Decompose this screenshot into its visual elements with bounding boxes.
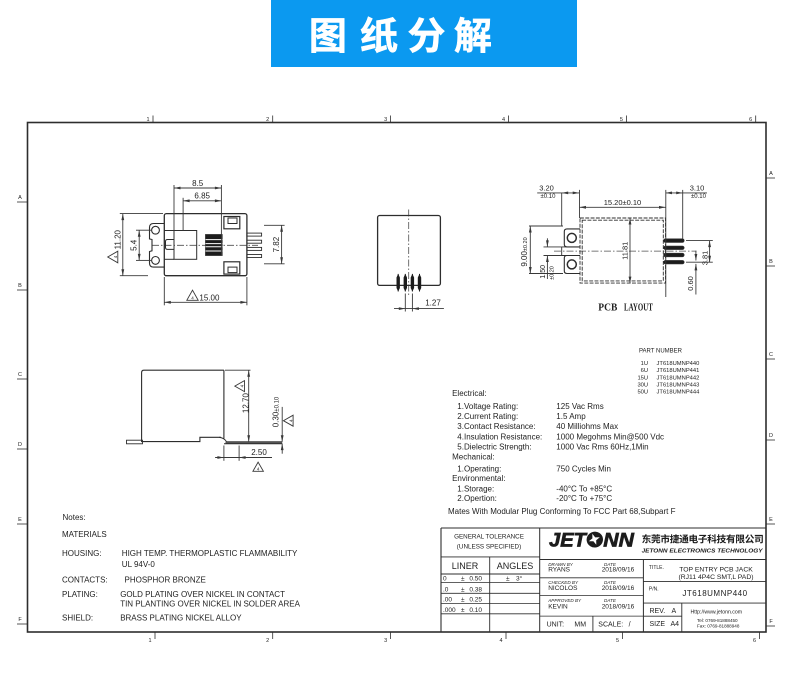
svg-text:.000: .000 bbox=[443, 607, 456, 614]
svg-text:2.Current Rating:: 2.Current Rating: bbox=[457, 412, 518, 421]
svg-text:Environmental:: Environmental: bbox=[452, 474, 505, 483]
svg-text:0.25: 0.25 bbox=[469, 597, 482, 604]
svg-text:C: C bbox=[769, 352, 773, 358]
svg-text:NICOLOS: NICOLOS bbox=[548, 585, 578, 592]
svg-text:3.10: 3.10 bbox=[690, 184, 705, 193]
svg-text:GOLD PLATING OVER NICKEL IN CO: GOLD PLATING OVER NICKEL IN CONTACT bbox=[120, 590, 285, 599]
svg-text:±: ± bbox=[461, 607, 465, 614]
svg-text:TOP ENTRY PCB JACK: TOP ENTRY PCB JACK bbox=[679, 567, 753, 574]
svg-text:5.Dielectric Strength:: 5.Dielectric Strength: bbox=[457, 443, 531, 452]
svg-text:Mechanical:: Mechanical: bbox=[452, 452, 495, 461]
svg-text:9.00±0.20: 9.00±0.20 bbox=[520, 237, 529, 266]
svg-text:±0.10: ±0.10 bbox=[691, 194, 707, 200]
svg-text:3.81: 3.81 bbox=[700, 251, 709, 266]
svg-text:C: C bbox=[18, 372, 22, 378]
svg-text:1: 1 bbox=[148, 638, 151, 644]
svg-text:3.Contact Resistance:: 3.Contact Resistance: bbox=[457, 422, 535, 431]
svg-text:Tel: 0769-81888450: Tel: 0769-81888450 bbox=[697, 618, 738, 623]
svg-text:0.50: 0.50 bbox=[469, 576, 482, 583]
svg-text:4: 4 bbox=[113, 255, 118, 258]
svg-text:1: 1 bbox=[146, 117, 149, 123]
svg-text:HIGH TEMP. THERMOPLASTIC FLAMM: HIGH TEMP. THERMOPLASTIC FLAMMABILITY bbox=[122, 549, 298, 558]
svg-text:-20°C To +75°C: -20°C To +75°C bbox=[556, 494, 612, 503]
svg-text:HOUSING:: HOUSING: bbox=[62, 549, 102, 558]
svg-text:Fax: 0769-81888948: Fax: 0769-81888948 bbox=[697, 624, 740, 629]
svg-text:750 Cycles Min: 750 Cycles Min bbox=[556, 465, 611, 474]
svg-text:8.5: 8.5 bbox=[192, 179, 204, 188]
svg-text:E: E bbox=[18, 517, 22, 523]
svg-text:A: A bbox=[18, 195, 22, 201]
svg-text:UNIT:: UNIT: bbox=[547, 622, 565, 629]
svg-text:PHOSPHOR BRONZE: PHOSPHOR BRONZE bbox=[125, 576, 206, 585]
svg-text:.0: .0 bbox=[443, 586, 449, 593]
svg-text:DATE: DATE bbox=[604, 598, 617, 603]
svg-text:APPROVED BY: APPROVED BY bbox=[547, 598, 582, 603]
svg-text:6: 6 bbox=[749, 117, 752, 123]
svg-text:15.20±0.10: 15.20±0.10 bbox=[604, 198, 641, 207]
svg-text:RYANS: RYANS bbox=[548, 567, 570, 574]
svg-text:2.50: 2.50 bbox=[251, 448, 267, 457]
svg-text:TIN PLANTING OVER NICKEL IN SO: TIN PLANTING OVER NICKEL IN SOLDER AREA bbox=[120, 600, 300, 609]
svg-text:UL 94V-0: UL 94V-0 bbox=[122, 560, 156, 569]
svg-text:2: 2 bbox=[266, 117, 269, 123]
svg-text:11.81: 11.81 bbox=[621, 242, 630, 260]
svg-text:2: 2 bbox=[266, 638, 269, 644]
svg-text:0.60: 0.60 bbox=[686, 276, 695, 291]
svg-text:0.10: 0.10 bbox=[469, 607, 482, 614]
svg-text:CONTACTS:: CONTACTS: bbox=[62, 576, 108, 585]
svg-text:1.27: 1.27 bbox=[425, 299, 441, 308]
svg-text:PLATING:: PLATING: bbox=[62, 590, 98, 599]
svg-text:2.Opertion:: 2.Opertion: bbox=[457, 494, 497, 503]
svg-text:0.38: 0.38 bbox=[469, 586, 482, 593]
svg-text:3: 3 bbox=[384, 117, 387, 123]
svg-text:4: 4 bbox=[191, 296, 194, 301]
svg-text:SHIELD:: SHIELD: bbox=[62, 614, 93, 623]
svg-text:125 Vac Rms: 125 Vac Rms bbox=[556, 402, 603, 411]
svg-text:/: / bbox=[629, 622, 631, 629]
svg-text:1000 Megohms Min@500 Vdc: 1000 Megohms Min@500 Vdc bbox=[556, 432, 664, 441]
svg-text:1000 Vac Rms 60Hz,1Min: 1000 Vac Rms 60Hz,1Min bbox=[556, 443, 648, 452]
svg-text:E: E bbox=[769, 517, 773, 523]
svg-text:-40°C To +85°C: -40°C To +85°C bbox=[556, 485, 612, 494]
svg-text:2018/09/16: 2018/09/16 bbox=[602, 585, 635, 592]
svg-text:7.82: 7.82 bbox=[272, 236, 281, 252]
svg-text:30U: 30U bbox=[637, 382, 648, 388]
svg-text:4: 4 bbox=[240, 384, 245, 387]
svg-text:1.Storage:: 1.Storage: bbox=[457, 485, 494, 494]
svg-text:A: A bbox=[672, 608, 677, 615]
svg-text:BRASS PLATING NICKEL ALLOY: BRASS PLATING NICKEL ALLOY bbox=[120, 614, 242, 623]
svg-text:F: F bbox=[769, 619, 773, 625]
svg-text:5: 5 bbox=[616, 638, 619, 644]
svg-text:1.50: 1.50 bbox=[540, 265, 547, 279]
svg-text:6U: 6U bbox=[641, 368, 648, 374]
svg-text:4.Insulation Resistance:: 4.Insulation Resistance: bbox=[457, 432, 542, 441]
svg-text:SCALE:: SCALE: bbox=[598, 622, 623, 629]
svg-text:LINER: LINER bbox=[452, 561, 479, 571]
svg-text:B: B bbox=[769, 259, 773, 265]
svg-text:6.85: 6.85 bbox=[194, 192, 210, 201]
svg-text:±0.10: ±0.10 bbox=[541, 194, 557, 200]
svg-text:2018/09/16: 2018/09/16 bbox=[602, 567, 635, 574]
svg-text:2018/09/16: 2018/09/16 bbox=[602, 604, 635, 611]
svg-text:A4: A4 bbox=[671, 621, 680, 628]
svg-text:TITLE.: TITLE. bbox=[649, 565, 664, 571]
svg-text:P/N.: P/N. bbox=[649, 587, 659, 593]
svg-text:JT618UMNP444: JT618UMNP444 bbox=[657, 390, 701, 396]
svg-text:ANGLES: ANGLES bbox=[497, 561, 534, 571]
svg-text:15.00: 15.00 bbox=[199, 293, 220, 302]
svg-text:.00: .00 bbox=[443, 597, 452, 604]
svg-text:±: ± bbox=[506, 576, 510, 583]
svg-text:MM: MM bbox=[574, 622, 586, 629]
svg-text:4: 4 bbox=[499, 638, 502, 644]
svg-text:REV.: REV. bbox=[650, 608, 666, 615]
svg-text:JT618UMNP443: JT618UMNP443 bbox=[657, 382, 700, 388]
svg-text:JT618UMNP440: JT618UMNP440 bbox=[657, 361, 700, 367]
svg-text:Mates With Modular Plug Confor: Mates With Modular Plug Conforming To FC… bbox=[448, 507, 676, 516]
svg-text:1.5 Amp: 1.5 Amp bbox=[556, 412, 586, 421]
svg-text:MATERIALS: MATERIALS bbox=[62, 530, 107, 539]
svg-text:(UNLESS SPECIFIED): (UNLESS SPECIFIED) bbox=[457, 544, 521, 551]
svg-text:D: D bbox=[18, 442, 22, 448]
svg-text:5: 5 bbox=[620, 117, 623, 123]
svg-text:40 Milliohms Max: 40 Milliohms Max bbox=[556, 422, 618, 431]
svg-text:LAYOUT: LAYOUT bbox=[624, 303, 653, 314]
svg-text:11.20: 11.20 bbox=[113, 229, 122, 249]
svg-text:1.Voltage Rating:: 1.Voltage Rating: bbox=[457, 402, 518, 411]
svg-text:±0.20: ±0.20 bbox=[549, 266, 555, 280]
svg-text:Http://www.jetonn.com: Http://www.jetonn.com bbox=[691, 610, 743, 616]
svg-text:KEVIN: KEVIN bbox=[548, 604, 568, 611]
svg-text:SIZE: SIZE bbox=[650, 621, 666, 628]
svg-text:0: 0 bbox=[443, 576, 447, 583]
svg-text:4: 4 bbox=[502, 117, 505, 123]
svg-text:JET: JET bbox=[549, 531, 587, 552]
svg-text:JT618UMNP441: JT618UMNP441 bbox=[657, 368, 700, 374]
svg-text:NN: NN bbox=[603, 531, 635, 552]
svg-text:±: ± bbox=[461, 586, 465, 593]
svg-text:B: B bbox=[18, 283, 22, 289]
svg-text:1U: 1U bbox=[641, 361, 648, 367]
svg-text:5.4: 5.4 bbox=[130, 239, 139, 251]
svg-text:(RJ11 4P4C SMT,L PAD): (RJ11 4P4C SMT,L PAD) bbox=[678, 574, 753, 581]
svg-text:3°: 3° bbox=[516, 575, 523, 583]
svg-text:JT618UMNP440: JT618UMNP440 bbox=[682, 589, 747, 598]
svg-text:PCB: PCB bbox=[598, 303, 617, 314]
svg-text:±: ± bbox=[461, 597, 465, 604]
svg-text:50U: 50U bbox=[637, 390, 648, 396]
svg-text:3.20: 3.20 bbox=[539, 184, 554, 193]
svg-text:1.Operating:: 1.Operating: bbox=[457, 465, 501, 474]
svg-text:4: 4 bbox=[288, 419, 293, 422]
svg-text:F: F bbox=[18, 617, 22, 623]
svg-text:3: 3 bbox=[384, 638, 387, 644]
svg-text:Electrical:: Electrical: bbox=[452, 389, 487, 398]
svg-text:12.70: 12.70 bbox=[241, 393, 250, 414]
svg-text:A: A bbox=[769, 171, 773, 177]
svg-text:6: 6 bbox=[753, 638, 756, 644]
svg-text:0.30±0.10: 0.30±0.10 bbox=[271, 396, 280, 427]
svg-text:±: ± bbox=[461, 576, 465, 583]
svg-text:D: D bbox=[769, 433, 773, 439]
svg-text:15U: 15U bbox=[637, 375, 648, 381]
svg-text:GENERAL TOLERANCE: GENERAL TOLERANCE bbox=[454, 534, 524, 541]
svg-text:JT618UMNP442: JT618UMNP442 bbox=[657, 375, 700, 381]
svg-text:JETONN ELECTRONICS TECHNOLOGY: JETONN ELECTRONICS TECHNOLOGY bbox=[642, 549, 764, 555]
svg-text:PART NUMBER: PART NUMBER bbox=[639, 348, 683, 354]
svg-text:Notes:: Notes: bbox=[63, 513, 86, 522]
